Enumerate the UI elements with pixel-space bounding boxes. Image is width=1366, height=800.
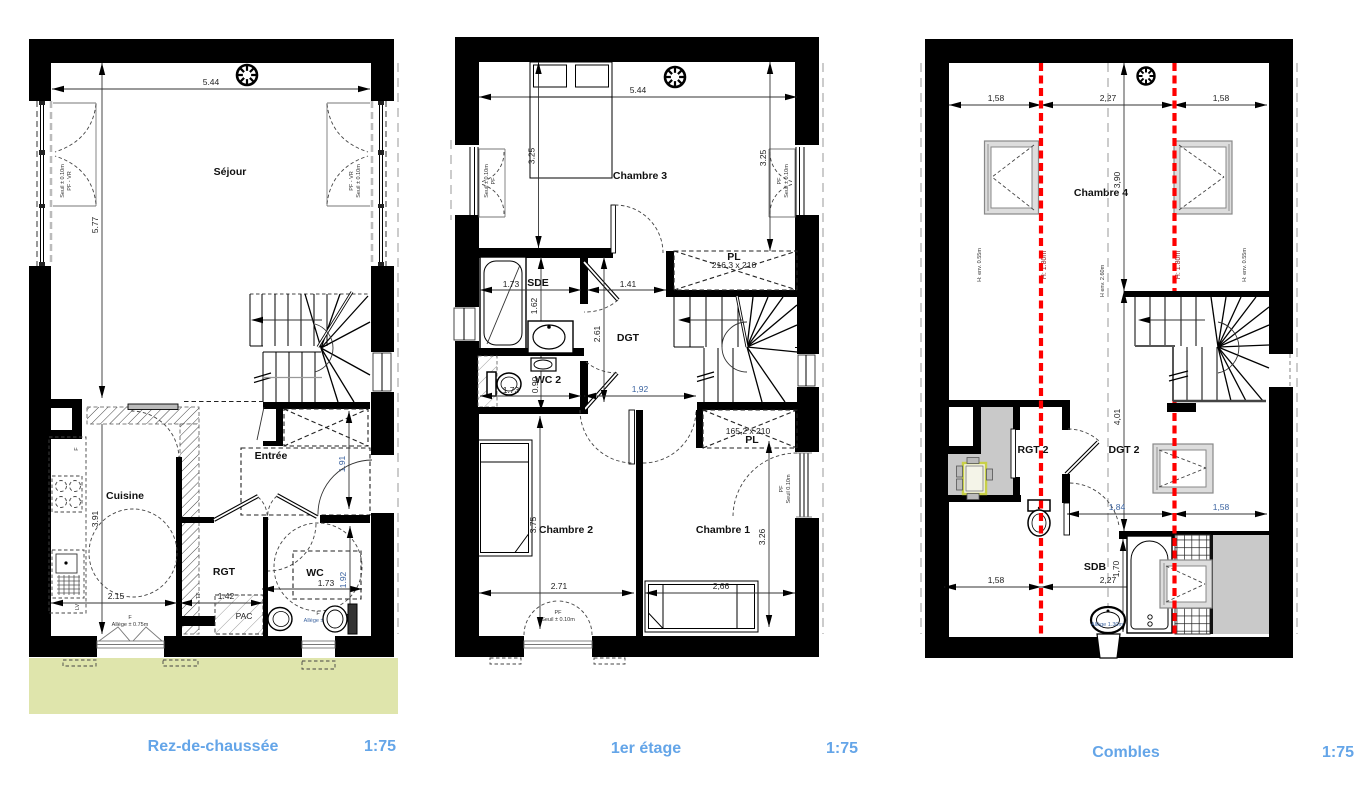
svg-text:1.42: 1.42 [218, 591, 235, 601]
svg-text:Entrée: Entrée [255, 450, 288, 462]
svg-text:5.77: 5.77 [90, 216, 100, 233]
svg-text:Séjour: Séjour [214, 166, 247, 178]
svg-text:Seuil ± 0.10m: Seuil ± 0.10m [60, 164, 66, 198]
svg-text:1.73: 1.73 [503, 279, 520, 289]
svg-text:1.92: 1.92 [338, 571, 348, 588]
svg-text:H env. 2.60m: H env. 2.60m [1100, 264, 1106, 297]
svg-text:5.44: 5.44 [203, 77, 220, 87]
svg-text:1,58: 1,58 [1213, 502, 1230, 512]
svg-text:Cuisine: Cuisine [106, 490, 144, 502]
svg-text:1,84: 1,84 [1109, 502, 1126, 512]
svg-text:5.44: 5.44 [630, 85, 647, 95]
svg-text:1:75: 1:75 [826, 740, 858, 757]
svg-text:LV: LV [75, 604, 81, 611]
svg-text:DGT 2: DGT 2 [1109, 444, 1140, 456]
svg-text:3.75: 3.75 [528, 516, 538, 533]
svg-text:1,92: 1,92 [632, 384, 649, 394]
svg-text:0.90: 0.90 [530, 376, 540, 393]
svg-text:SDB: SDB [1084, 561, 1107, 573]
svg-text:PL: PL [745, 434, 759, 446]
svg-text:3.26: 3.26 [757, 528, 767, 545]
svg-text:Allège 1.30m: Allège 1.30m [1091, 622, 1124, 628]
svg-text:Seuil 0.10m: Seuil 0.10m [786, 474, 792, 503]
svg-text:TT: TT [196, 592, 202, 599]
svg-text:PF: PF [777, 177, 783, 185]
svg-text:2.15: 2.15 [108, 591, 125, 601]
svg-text:1,58: 1,58 [1213, 93, 1230, 103]
svg-text:2.71: 2.71 [551, 581, 568, 591]
svg-text:1:75: 1:75 [364, 738, 396, 755]
svg-text:Allège ± 0.75m: Allège ± 0.75m [112, 622, 149, 628]
svg-text:RGT 2: RGT 2 [1018, 444, 1049, 456]
svg-text:PF: PF [779, 485, 785, 493]
svg-text:1:75: 1:75 [1322, 744, 1354, 761]
svg-text:Chambre 2: Chambre 2 [539, 524, 593, 536]
svg-text:H: env. 0.55m: H: env. 0.55m [1242, 248, 1248, 282]
svg-text:1,58: 1,58 [988, 93, 1005, 103]
svg-text:1.91: 1.91 [337, 455, 347, 472]
svg-text:Seuil ± 0.10m: Seuil ± 0.10m [484, 164, 490, 198]
svg-text:3.25: 3.25 [527, 147, 537, 164]
svg-text:PAC: PAC [236, 611, 253, 621]
svg-text:1er étage: 1er étage [611, 740, 681, 757]
svg-text:3.25: 3.25 [758, 149, 768, 166]
svg-text:Chambre 1: Chambre 1 [696, 524, 750, 536]
svg-text:2.61: 2.61 [592, 325, 602, 342]
svg-text:Chambre 3: Chambre 3 [613, 170, 667, 182]
svg-text:Seuil ± 0.10m: Seuil ± 0.10m [356, 164, 362, 198]
svg-text:Seuil ± 0.10m: Seuil ± 0.10m [784, 164, 790, 198]
svg-text:3,90: 3,90 [1112, 171, 1122, 188]
svg-text:PF - VR: PF - VR [349, 171, 355, 191]
svg-text:PF: PF [554, 610, 562, 616]
svg-text:PF: PF [491, 177, 497, 185]
svg-text:2,66: 2,66 [713, 581, 730, 591]
svg-text:Combles: Combles [1092, 744, 1160, 761]
svg-text:SDE: SDE [527, 277, 549, 289]
svg-text:RGT: RGT [213, 566, 236, 578]
svg-text:PF - VR: PF - VR [67, 171, 73, 191]
svg-text:Seuil ± 0.10m: Seuil ± 0.10m [541, 617, 575, 623]
svg-text:Rez-de-chaussée: Rez-de-chaussée [148, 738, 279, 755]
svg-text:1.73: 1.73 [503, 385, 520, 395]
svg-text:H: env. 0.55m: H: env. 0.55m [977, 248, 983, 282]
svg-text:4,01: 4,01 [1112, 408, 1122, 425]
svg-text:3.91: 3.91 [90, 510, 100, 527]
svg-text:DGT: DGT [617, 332, 640, 344]
svg-text:1,58: 1,58 [988, 575, 1005, 585]
svg-text:1,70: 1,70 [1111, 560, 1121, 577]
svg-text:1.41: 1.41 [620, 279, 637, 289]
svg-text:1.73: 1.73 [318, 578, 335, 588]
svg-text:1.62: 1.62 [529, 297, 539, 314]
svg-text:216,3 x 210: 216,3 x 210 [712, 260, 757, 270]
